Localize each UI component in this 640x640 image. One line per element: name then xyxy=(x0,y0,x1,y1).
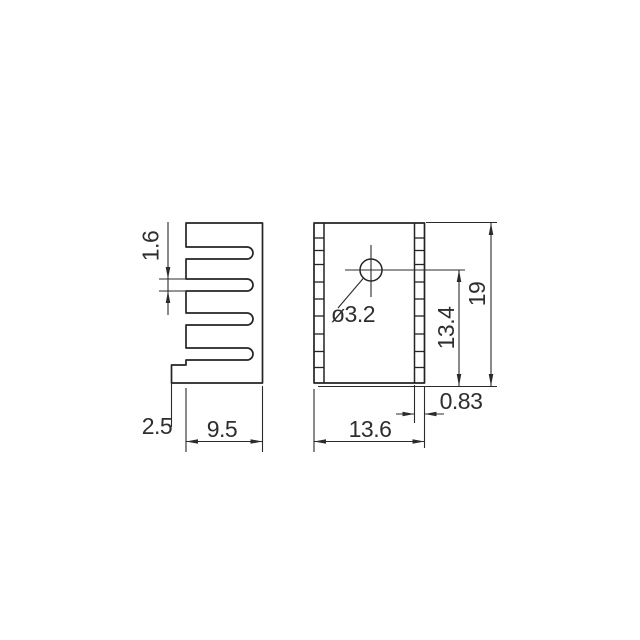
side-view xyxy=(172,223,263,383)
arrowhead xyxy=(413,439,425,444)
arrowhead xyxy=(166,267,171,279)
arrowhead xyxy=(489,223,494,235)
dimension-value: 1.6 xyxy=(138,231,164,261)
arrowhead xyxy=(425,412,437,417)
dimension-value: ø3.2 xyxy=(331,301,375,327)
arrowhead xyxy=(186,439,198,444)
dimension-hole-offset: 13.4 xyxy=(433,270,461,387)
arrowhead xyxy=(489,374,494,386)
dimension-value: 13.4 xyxy=(433,306,459,349)
dimension-value: 2.5 xyxy=(142,413,172,439)
arrowhead xyxy=(457,374,462,386)
arrowhead xyxy=(457,270,462,282)
side-view-profile xyxy=(172,223,263,383)
front-view-left-serrations xyxy=(314,238,324,368)
dimension-base-thickness: 0.83 xyxy=(396,385,482,423)
dimension-value: 9.5 xyxy=(207,416,237,442)
dimension-depth: 9.5 xyxy=(186,386,263,452)
dimension-value: 19 xyxy=(464,282,490,307)
technical-drawing: 1.6 2.5 9.5 13.6 0.83 13.4 xyxy=(0,0,640,640)
dimension-width: 13.6 xyxy=(314,386,425,452)
dimension-value: 13.6 xyxy=(349,416,392,442)
dimension-fin-gap: 1.6 xyxy=(138,222,194,315)
arrowhead xyxy=(166,291,171,303)
arrowhead xyxy=(251,439,263,444)
dimension-value: 0.83 xyxy=(440,388,483,414)
dimension-tab-width: 2.5 xyxy=(142,383,172,439)
arrowhead xyxy=(314,439,326,444)
arrowhead xyxy=(403,412,415,417)
label-hole-diameter: ø3.2 xyxy=(331,278,375,328)
front-view-base-serrations xyxy=(415,238,425,368)
drawing-sheet: 1.6 2.5 9.5 13.6 0.83 13.4 xyxy=(0,0,640,640)
